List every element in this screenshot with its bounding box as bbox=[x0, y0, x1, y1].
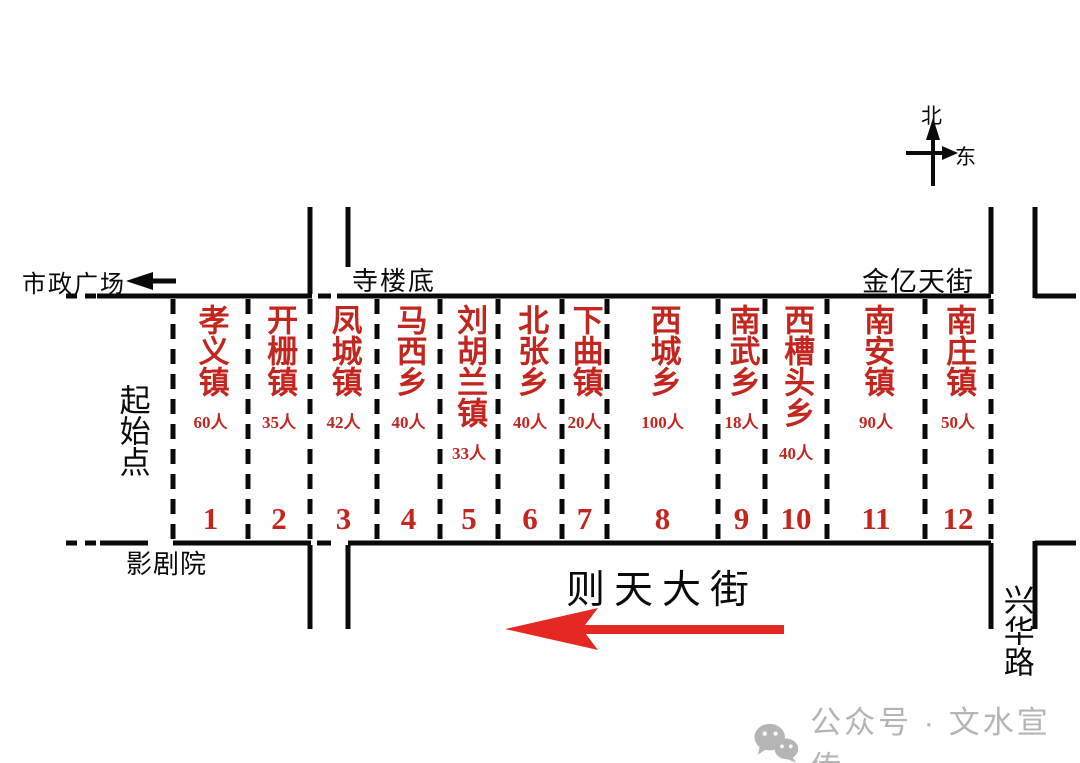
section-number: 11 bbox=[861, 503, 890, 534]
section-count: 40人 bbox=[779, 439, 813, 464]
section-name: 凤城镇 bbox=[325, 304, 361, 397]
section-slot-3: 凤城镇 42人 3 bbox=[310, 296, 377, 543]
section-number: 4 bbox=[401, 503, 417, 534]
compass-north-label: 北 bbox=[921, 100, 942, 130]
section-slot-11: 南安镇 90人 11 bbox=[827, 296, 925, 543]
east-cross-street-lines bbox=[991, 207, 1035, 629]
section-number: 9 bbox=[734, 503, 750, 534]
route-diagram: 市政广场 寺楼底 金亿天街 起始点 影剧院 兴华路 则天大街 北 东 孝义镇 6… bbox=[0, 0, 1080, 763]
section-name: 刘胡兰镇 bbox=[451, 304, 487, 428]
section-name: 南庄镇 bbox=[940, 304, 976, 397]
wechat-icon bbox=[751, 720, 800, 763]
silou-di-label: 寺楼底 bbox=[352, 261, 436, 298]
section-number: 6 bbox=[522, 503, 538, 534]
xinghua-road-label: 兴华路 bbox=[998, 584, 1033, 677]
starting-point-label: 起始点 bbox=[114, 384, 150, 477]
section-slot-2: 开栅镇 35人 2 bbox=[248, 296, 310, 543]
section-count: 50人 bbox=[941, 408, 975, 433]
section-name: 开栅镇 bbox=[261, 304, 297, 397]
section-slot-9: 南武乡 18人 9 bbox=[718, 296, 765, 543]
section-number: 7 bbox=[577, 503, 593, 534]
section-count: 100人 bbox=[641, 408, 684, 433]
section-slot-4: 马西乡 40人 4 bbox=[377, 296, 440, 543]
section-slot-6: 北张乡 40人 6 bbox=[498, 296, 562, 543]
section-number: 3 bbox=[336, 503, 352, 534]
section-slot-12: 南庄镇 50人 12 bbox=[925, 296, 991, 543]
section-number: 5 bbox=[461, 503, 477, 534]
section-count: 42人 bbox=[327, 408, 361, 433]
section-count: 20人 bbox=[568, 408, 602, 433]
section-count: 40人 bbox=[392, 408, 426, 433]
section-name: 马西乡 bbox=[390, 304, 426, 397]
section-name: 南武乡 bbox=[723, 304, 759, 397]
compass-east-label: 东 bbox=[955, 141, 976, 171]
section-number: 1 bbox=[203, 503, 219, 534]
section-slot-8: 西城乡 100人 8 bbox=[607, 296, 718, 543]
municipal-square-label: 市政广场 bbox=[22, 264, 126, 299]
section-slot-10: 西槽头乡 40人 10 bbox=[765, 296, 827, 543]
watermark: 公众号 · 文水宣传 bbox=[751, 697, 1080, 763]
section-slot-5: 刘胡兰镇 33人 5 bbox=[440, 296, 498, 543]
section-name: 孝义镇 bbox=[192, 304, 228, 397]
section-name: 西城乡 bbox=[644, 304, 680, 397]
section-count: 33人 bbox=[452, 439, 486, 464]
theater-label: 影剧院 bbox=[126, 544, 207, 581]
section-slot-7: 下曲镇 20人 7 bbox=[562, 296, 607, 543]
section-count: 90人 bbox=[859, 408, 893, 433]
section-count: 40人 bbox=[513, 408, 547, 433]
section-number: 2 bbox=[271, 503, 287, 534]
section-slot-1: 孝义镇 60人 1 bbox=[173, 296, 248, 543]
section-number: 10 bbox=[781, 503, 812, 534]
section-name: 西槽头乡 bbox=[778, 304, 814, 428]
section-number: 12 bbox=[943, 503, 974, 534]
section-name: 北张乡 bbox=[512, 304, 548, 397]
watermark-text: 公众号 · 文水宣传 bbox=[810, 697, 1080, 763]
section-name: 南安镇 bbox=[858, 304, 894, 397]
section-count: 60人 bbox=[194, 408, 228, 433]
section-number: 8 bbox=[655, 503, 671, 534]
main-street-name-label: 则天大街 bbox=[566, 559, 758, 615]
west-arrow-icon bbox=[126, 272, 176, 290]
jinyi-tian-street-label: 金亿天街 bbox=[862, 260, 974, 299]
section-name: 下曲镇 bbox=[566, 304, 602, 397]
section-count: 35人 bbox=[262, 408, 296, 433]
section-count: 18人 bbox=[725, 408, 759, 433]
